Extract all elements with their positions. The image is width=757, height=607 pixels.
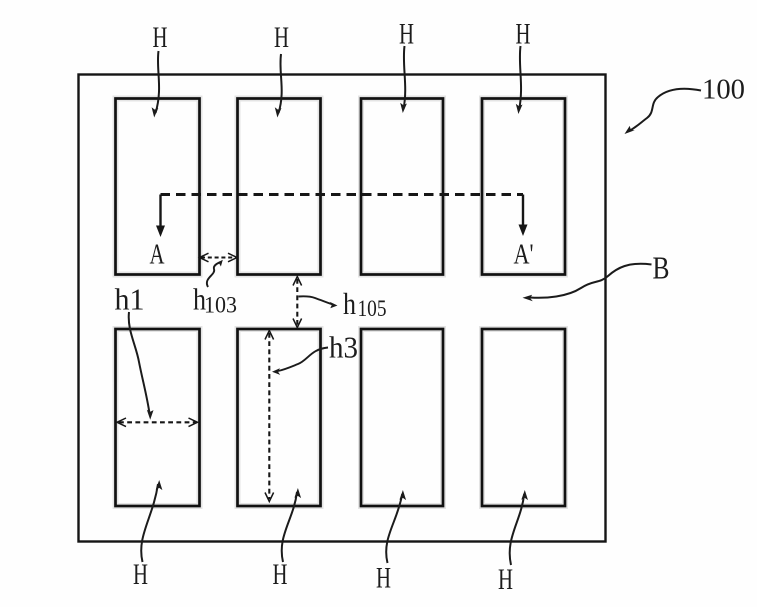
svg-text:H: H (376, 562, 391, 595)
svg-text:B: B (653, 250, 670, 286)
svg-text:h: h (343, 286, 356, 321)
svg-text:h3: h3 (329, 330, 358, 365)
svg-text:H: H (153, 21, 168, 54)
svg-text:H: H (133, 558, 148, 591)
svg-text:100: 100 (702, 74, 745, 106)
svg-text:A': A' (514, 239, 534, 271)
svg-text:H: H (399, 18, 414, 51)
svg-text:H: H (498, 563, 513, 596)
svg-text:103: 103 (204, 293, 237, 318)
svg-text:h1: h1 (115, 282, 145, 317)
svg-text:H: H (273, 558, 288, 591)
svg-text:A: A (150, 239, 165, 271)
svg-text:105: 105 (358, 296, 387, 321)
svg-text:H: H (516, 18, 531, 51)
svg-text:H: H (274, 21, 289, 54)
